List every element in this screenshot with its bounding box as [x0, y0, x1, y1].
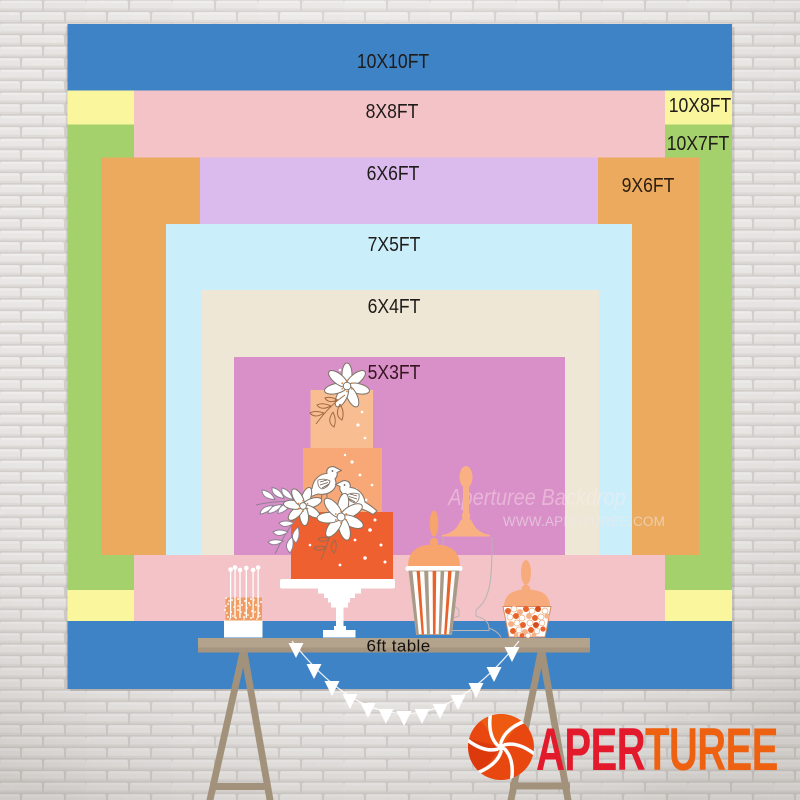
svg-text:9X6FT: 9X6FT: [622, 174, 675, 196]
svg-text:5X3FT: 5X3FT: [368, 361, 421, 383]
svg-text:10X7FT: 10X7FT: [667, 132, 730, 154]
svg-text:6X6FT: 6X6FT: [367, 162, 420, 184]
svg-text:8X8FT: 8X8FT: [366, 100, 419, 122]
svg-text:10X10FT: 10X10FT: [357, 50, 430, 72]
svg-text:7X5FT: 7X5FT: [368, 233, 421, 255]
svg-text:6X4FT: 6X4FT: [368, 295, 421, 317]
svg-text:10X8FT: 10X8FT: [669, 94, 732, 116]
svg-text:WWW.APERTUREE.COM: WWW.APERTUREE.COM: [503, 514, 665, 529]
svg-text:Aperturee Backdrop: Aperturee Backdrop: [446, 483, 625, 510]
svg-text:APERTUREE: APERTUREE: [536, 716, 778, 783]
svg-text:6ft table: 6ft table: [367, 637, 431, 656]
